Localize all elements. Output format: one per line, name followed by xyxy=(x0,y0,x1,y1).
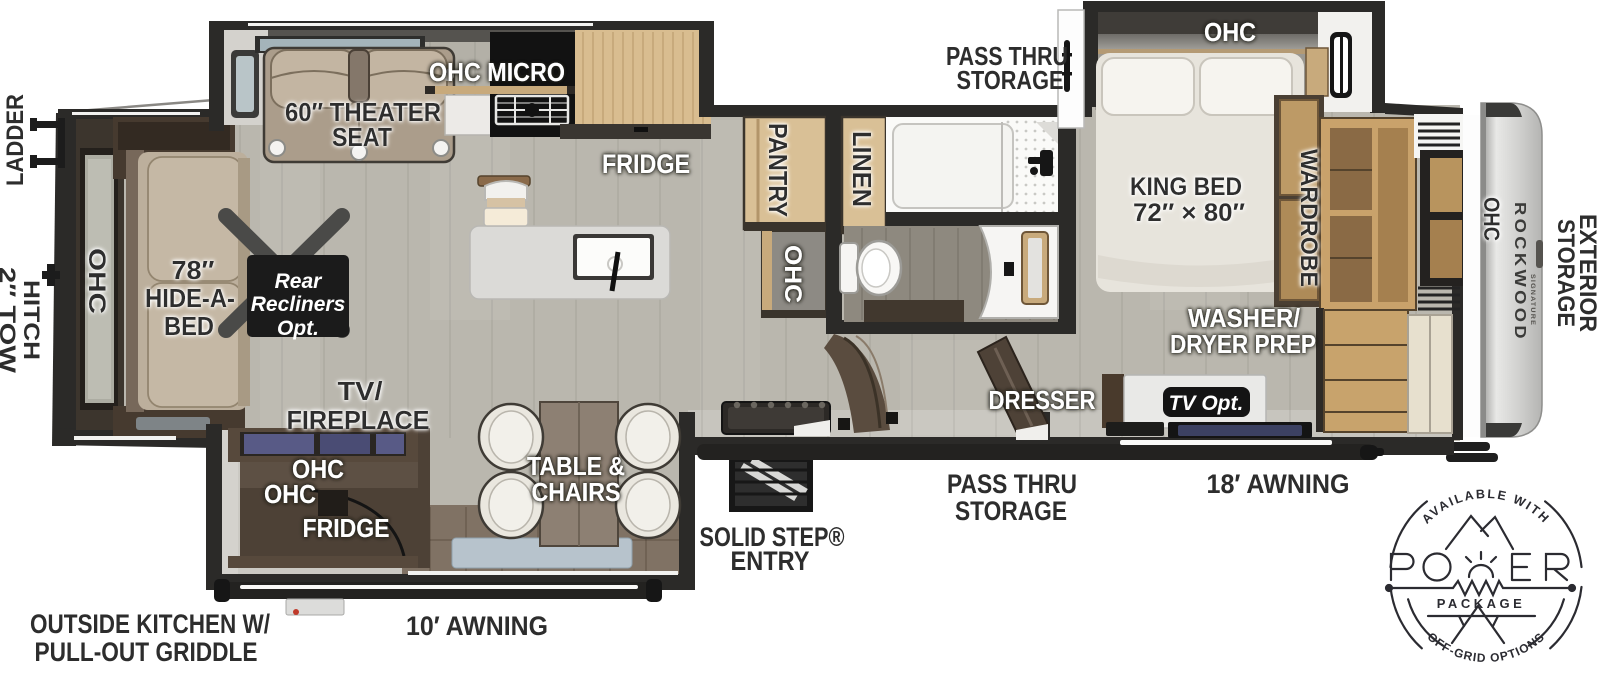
svg-text:FIREPLACE: FIREPLACE xyxy=(287,405,430,435)
svg-text:KING BED: KING BED xyxy=(1130,173,1242,201)
svg-text:SIGNATURE: SIGNATURE xyxy=(1529,274,1535,326)
svg-text:OHC: OHC xyxy=(1204,17,1256,47)
svg-text:OHC: OHC xyxy=(1479,197,1504,241)
svg-text:10′ AWNING: 10′ AWNING xyxy=(406,611,548,641)
svg-text:2″ TOW: 2″ TOW xyxy=(0,267,20,373)
svg-text:CHAIRS: CHAIRS xyxy=(532,477,621,507)
svg-text:Rear: Rear xyxy=(275,270,324,293)
svg-text:LADDER: LADDER xyxy=(2,94,29,186)
svg-text:AVAILABLE WITH: AVAILABLE WITH xyxy=(1419,487,1553,527)
svg-text:OHC MICRO: OHC MICRO xyxy=(429,57,565,87)
svg-text:PASS THRU: PASS THRU xyxy=(947,469,1077,499)
svg-text:TV Opt.: TV Opt. xyxy=(1169,392,1244,415)
svg-text:STORAGE: STORAGE xyxy=(957,65,1064,95)
svg-text:STORAGE: STORAGE xyxy=(955,496,1067,526)
svg-text:OFF-GRID OPTIONS: OFF-GRID OPTIONS xyxy=(1424,630,1547,666)
svg-text:DRYER PREP: DRYER PREP xyxy=(1170,329,1316,359)
svg-text:TV/: TV/ xyxy=(338,376,383,406)
svg-text:Opt.: Opt. xyxy=(277,317,319,340)
svg-text:DRESSER: DRESSER xyxy=(989,385,1096,415)
svg-text:OUTSIDE KITCHEN W/: OUTSIDE KITCHEN W/ xyxy=(30,609,270,639)
svg-text:HITCH: HITCH xyxy=(19,280,44,360)
svg-text:HIDE-A-: HIDE-A- xyxy=(145,283,235,313)
svg-text:WARDROBE: WARDROBE xyxy=(1295,149,1322,287)
svg-text:78″: 78″ xyxy=(172,255,215,285)
svg-text:OHC: OHC xyxy=(264,479,316,509)
svg-text:FRIDGE: FRIDGE xyxy=(303,513,390,543)
svg-text:FRIDGE: FRIDGE xyxy=(602,149,690,179)
svg-text:OHC: OHC xyxy=(779,245,806,303)
svg-text:LINEN: LINEN xyxy=(847,131,877,207)
svg-text:PANTRY: PANTRY xyxy=(763,123,793,217)
svg-text:Recliners: Recliners xyxy=(251,293,346,316)
svg-text:STORAGE: STORAGE xyxy=(1552,219,1579,327)
svg-text:SEAT: SEAT xyxy=(332,122,392,152)
svg-text:18′ AWNING: 18′ AWNING xyxy=(1207,469,1350,499)
svg-text:PULL-OUT GRIDDLE: PULL-OUT GRIDDLE xyxy=(35,637,258,667)
svg-text:BED: BED xyxy=(164,311,214,341)
svg-text:OHC: OHC xyxy=(83,248,110,314)
svg-text:72″ × 80″: 72″ × 80″ xyxy=(1133,199,1245,227)
svg-text:PACKAGE: PACKAGE xyxy=(1437,596,1526,611)
svg-text:ENTRY: ENTRY xyxy=(731,546,810,576)
svg-text:ROCKWOOD: ROCKWOOD xyxy=(1511,202,1528,342)
